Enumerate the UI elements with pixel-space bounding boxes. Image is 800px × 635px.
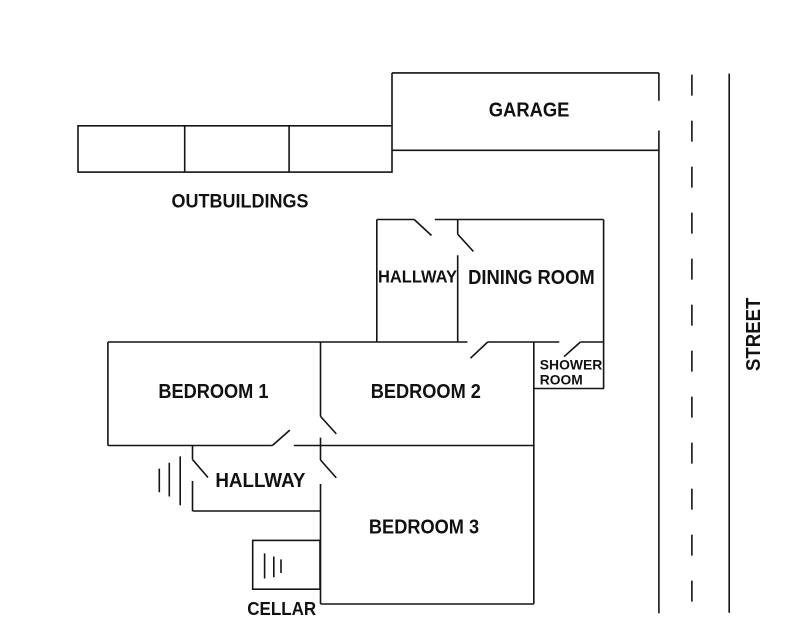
svg-text:GARAGE: GARAGE bbox=[489, 99, 570, 122]
svg-text:STREET: STREET bbox=[742, 298, 765, 371]
svg-text:BEDROOM 3: BEDROOM 3 bbox=[369, 517, 479, 539]
svg-text:BEDROOM 1: BEDROOM 1 bbox=[158, 381, 269, 403]
svg-text:HALLWAY: HALLWAY bbox=[215, 469, 305, 492]
svg-text:OUTBUILDINGS: OUTBUILDINGS bbox=[172, 191, 309, 213]
svg-text:SHOWER: SHOWER bbox=[540, 356, 603, 372]
svg-text:BEDROOM 2: BEDROOM 2 bbox=[371, 381, 481, 403]
svg-text:ROOM: ROOM bbox=[540, 372, 583, 387]
svg-text:DINING ROOM: DINING ROOM bbox=[468, 266, 595, 289]
svg-text:HALLWAY: HALLWAY bbox=[378, 267, 457, 286]
svg-text:CELLAR: CELLAR bbox=[247, 598, 316, 619]
